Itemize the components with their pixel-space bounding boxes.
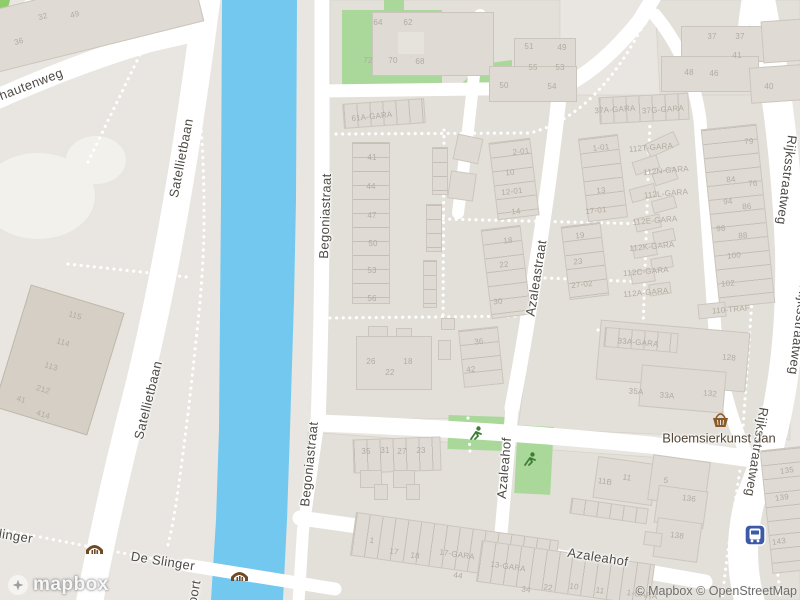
road-satellietbaan xyxy=(88,0,208,600)
building-label: 1 xyxy=(369,537,375,546)
building-label: 10 xyxy=(505,169,515,178)
building xyxy=(447,170,477,201)
building-label: 41 xyxy=(367,154,376,162)
building xyxy=(438,340,451,360)
building-label: 70 xyxy=(388,57,397,65)
building-label: 37 xyxy=(707,33,716,41)
building-label: 14 xyxy=(511,208,521,217)
building-label: 62 xyxy=(403,19,412,27)
building-label: 23 xyxy=(573,258,583,267)
basket-icon xyxy=(712,412,729,428)
building-label: 27 xyxy=(397,448,406,456)
poi-label-bloemsierkunst-jan[interactable]: Bloemsierkunst Jan xyxy=(662,431,775,446)
building-terrace xyxy=(458,326,504,388)
building-label: 26 xyxy=(366,358,375,366)
building-label: 100 xyxy=(727,251,742,260)
building-label: 94 xyxy=(723,198,733,207)
building-label: 88 xyxy=(738,232,748,241)
building-label: 132 xyxy=(703,389,718,398)
building-label: 76 xyxy=(748,180,758,189)
building-label: 56 xyxy=(367,295,376,303)
building-label: 30 xyxy=(493,298,503,307)
building-label: 136 xyxy=(682,494,697,504)
garage-strip xyxy=(432,147,448,195)
building-label: 53 xyxy=(367,267,376,275)
building-label: 18 xyxy=(503,237,513,246)
building-label: 22 xyxy=(499,261,509,270)
bus-stop-icon xyxy=(744,524,766,546)
building-label: 36 xyxy=(474,338,484,347)
mapbox-logo-icon xyxy=(8,575,28,595)
building-label: 31 xyxy=(380,447,389,455)
building-label: 41 xyxy=(732,52,741,60)
street-label-oort-partial: oort xyxy=(185,579,204,600)
building-label: 46 xyxy=(709,70,718,78)
building-label: 50 xyxy=(499,82,508,90)
building-label: 18 xyxy=(410,551,420,560)
building-label: 35 xyxy=(361,448,370,456)
building-label: 11 xyxy=(595,586,605,595)
building-label: 34 xyxy=(521,585,531,594)
building-label: 42 xyxy=(466,366,476,375)
building-label: 5 xyxy=(663,477,669,486)
building-label: 79 xyxy=(744,138,754,147)
building xyxy=(406,484,420,500)
building xyxy=(514,38,576,68)
building-label: 86 xyxy=(742,203,752,212)
building-label: 72 xyxy=(363,57,372,65)
building-label: 37 xyxy=(735,33,744,41)
building-label: 51 xyxy=(524,43,533,51)
building-label: 44 xyxy=(453,571,463,580)
building-label: 13 xyxy=(596,187,606,196)
building-label: 102 xyxy=(721,279,736,288)
playground-icon xyxy=(469,426,484,441)
building-label: 47 xyxy=(367,212,376,220)
building xyxy=(749,64,800,104)
street-label-begoniastraat: Begoniastraat xyxy=(316,173,334,259)
building-label: 35A xyxy=(628,387,643,396)
building-label: 64 xyxy=(373,19,382,27)
garage-strip xyxy=(423,260,437,308)
building-label: 49 xyxy=(557,44,566,52)
building-label: 10 xyxy=(569,582,579,591)
building-label: 50 xyxy=(368,240,377,248)
building xyxy=(372,12,494,76)
building-label: 53 xyxy=(555,64,564,72)
building-label: 19 xyxy=(575,232,585,241)
building-label: 54 xyxy=(547,83,556,91)
map-canvas[interactable]: 3249366462727068514955535054373741484640… xyxy=(0,0,800,600)
building-label: 23 xyxy=(416,447,425,455)
building-label: 18 xyxy=(403,358,412,366)
building-label: 17 xyxy=(389,547,399,556)
building-label: 22 xyxy=(385,369,394,377)
building-label: 68 xyxy=(415,58,424,66)
building xyxy=(643,531,663,547)
building-label: 98 xyxy=(716,225,726,234)
canal-water xyxy=(211,0,297,600)
building-terrace xyxy=(352,142,390,304)
building-label: 22 xyxy=(543,583,553,592)
bridge-icon xyxy=(86,543,103,554)
mapbox-logo[interactable]: mapbox xyxy=(8,574,109,596)
building-label: 40 xyxy=(764,83,773,91)
building-label: 84 xyxy=(726,176,736,185)
building-label: 138 xyxy=(670,531,685,541)
building-label: 48 xyxy=(684,69,693,77)
building-label: 44 xyxy=(366,183,375,191)
building xyxy=(441,318,455,330)
playground-icon xyxy=(523,452,538,467)
building xyxy=(374,484,388,500)
bridge-icon xyxy=(231,570,248,581)
building-label: 128 xyxy=(722,353,737,362)
building-label: 11 xyxy=(622,473,632,482)
building xyxy=(398,32,424,54)
map-attribution[interactable]: © Mapbox © OpenStreetMap xyxy=(635,584,797,598)
building xyxy=(761,19,800,64)
building-label: 55 xyxy=(528,64,537,72)
building xyxy=(453,134,484,165)
mapbox-wordmark: mapbox xyxy=(33,574,109,596)
garage-strip xyxy=(426,204,442,252)
building-label: 33A xyxy=(659,391,674,400)
